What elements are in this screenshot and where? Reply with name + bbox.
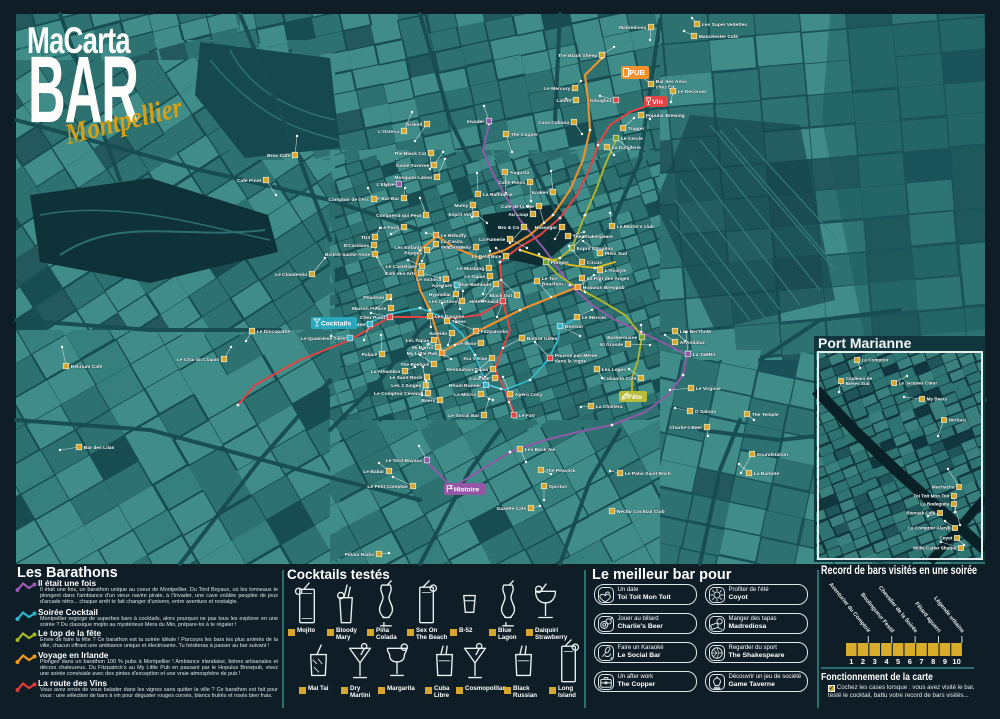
- svg-text:2: 2: [861, 657, 865, 666]
- svg-text:10: 10: [952, 657, 960, 666]
- svg-text:1: 1: [849, 657, 853, 666]
- svg-text:6: 6: [908, 657, 912, 666]
- svg-text:Chevalier de la Soirée: Chevalier de la Soirée: [877, 585, 918, 634]
- svg-text:9: 9: [943, 657, 947, 666]
- svg-text:4: 4: [884, 657, 889, 666]
- svg-text:8: 8: [931, 657, 935, 666]
- svg-text:3: 3: [873, 657, 877, 666]
- svg-text:7: 7: [919, 657, 923, 666]
- svg-text:Aventurier du Comptoir: Aventurier du Comptoir: [827, 582, 872, 635]
- svg-text:5: 5: [896, 657, 900, 666]
